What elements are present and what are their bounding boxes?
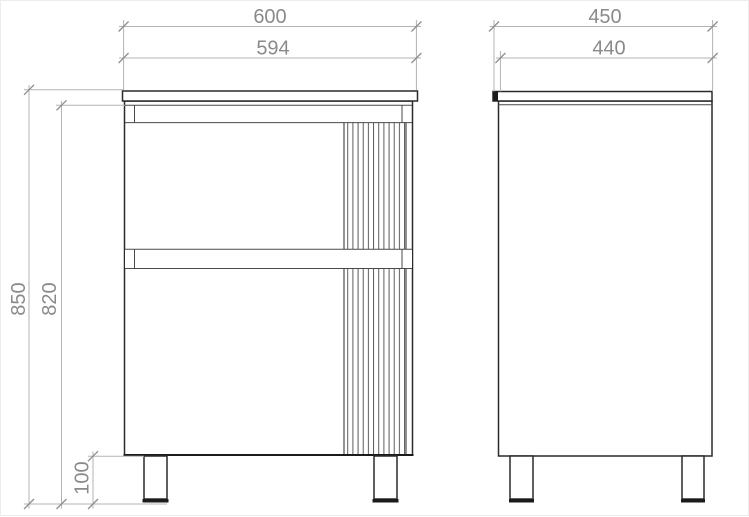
dim-leg-height-label: 100 (72, 461, 94, 494)
fluted-panel-lower (344, 269, 406, 455)
dim-leg-height: 100 (72, 451, 99, 509)
side-leg-back (681, 456, 705, 501)
side-leg-front (509, 456, 534, 501)
dim-counter-width: 600 (119, 6, 422, 32)
cabinet-dimension-drawing: 600 594 450 440 (1, 1, 749, 517)
technical-drawing-canvas: 600 594 450 440 (0, 0, 749, 516)
side-countertop-front-edge (493, 92, 498, 102)
fluted-panel-upper (344, 123, 406, 249)
side-cabinet-body (499, 101, 713, 456)
side-countertop (493, 92, 712, 102)
front-leg-left (143, 456, 169, 501)
dim-body-depth: 440 (495, 38, 717, 64)
front-leg-right (373, 456, 399, 501)
side-view (493, 92, 712, 501)
dim-overall-height-label: 850 (8, 282, 30, 315)
front-view (123, 91, 418, 501)
dim-overall-height: 850 (8, 85, 34, 509)
dim-counter-depth: 450 (489, 6, 718, 32)
dim-body-height-label: 820 (39, 282, 61, 315)
dim-body-width: 594 (119, 38, 422, 64)
dim-body-height: 820 (39, 100, 67, 509)
dim-counter-width-label: 600 (253, 6, 286, 28)
front-countertop (123, 91, 418, 101)
dim-body-depth-label: 440 (592, 38, 625, 60)
dim-counter-depth-label: 450 (588, 6, 621, 28)
fluted-panel (344, 123, 406, 455)
middle-drawer-handle-rail (125, 249, 412, 268)
dim-body-width-label: 594 (256, 38, 289, 60)
